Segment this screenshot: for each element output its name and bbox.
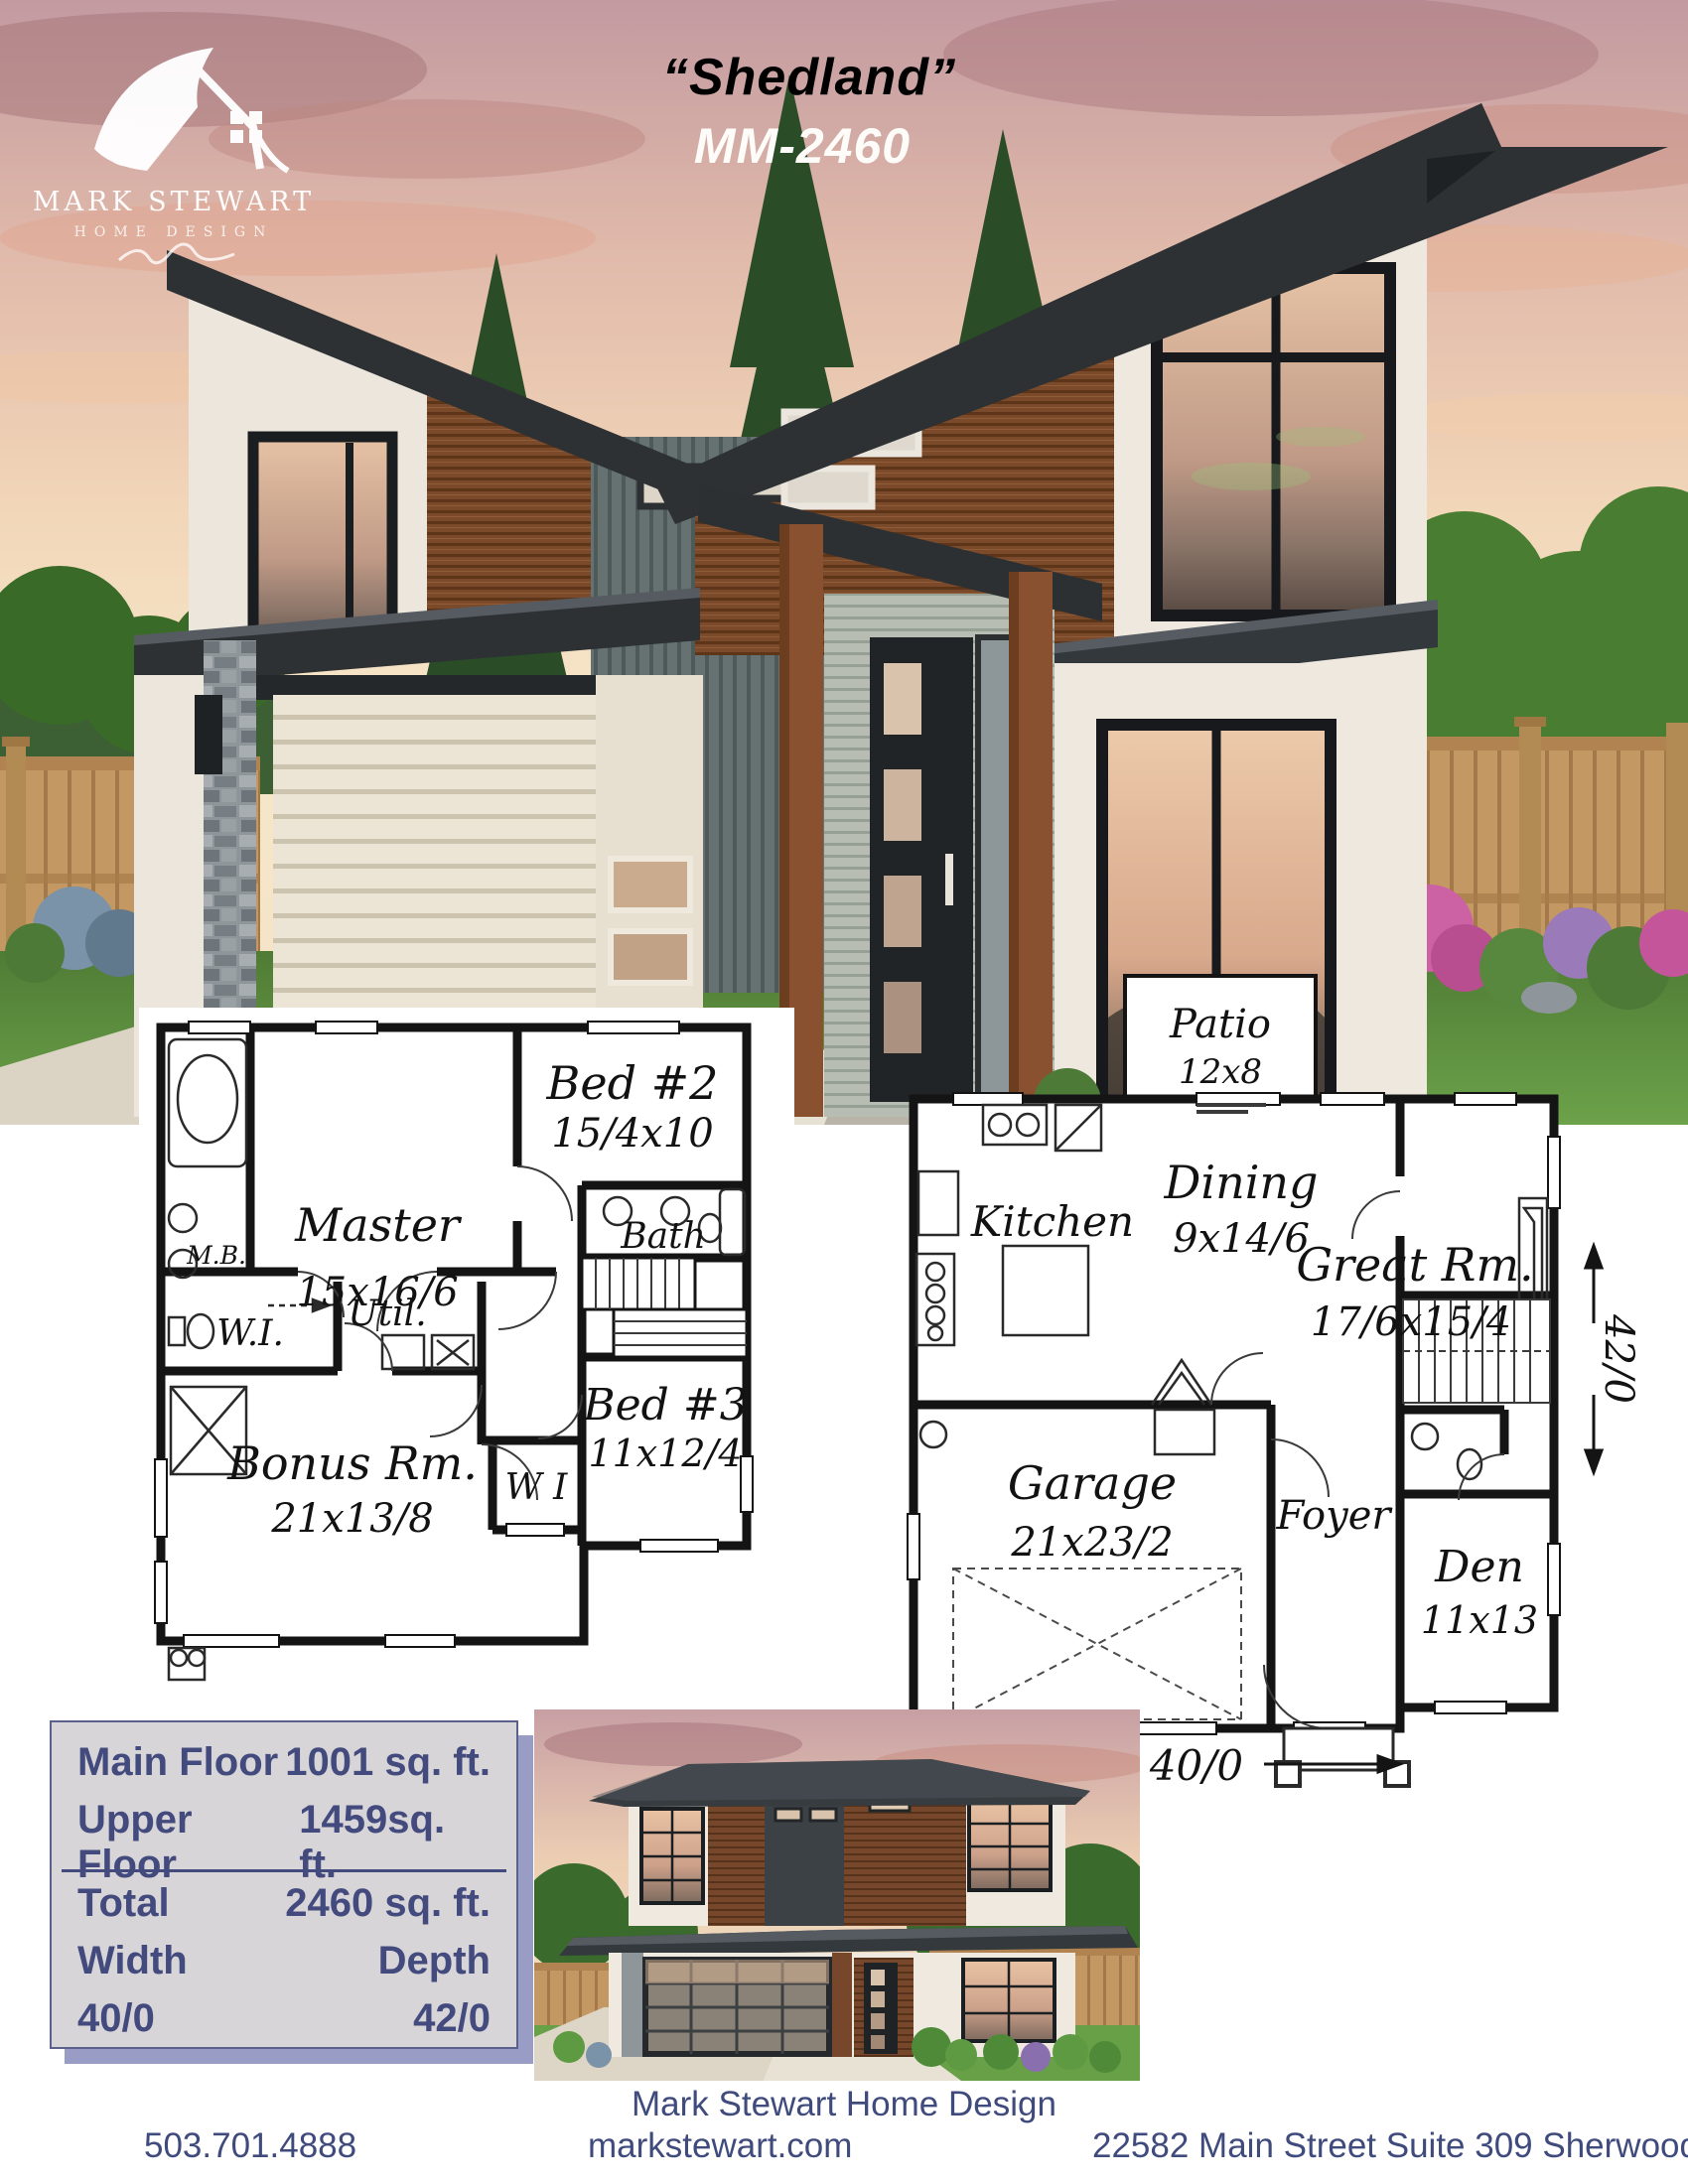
- room-label-bonus: Bonus Rm.: [226, 1436, 478, 1490]
- room-label-wi: W.I.: [216, 1313, 284, 1354]
- room-label-bed3: Bed #3: [582, 1380, 747, 1431]
- flyer-page: MARK STEWART HOME DESIGN “Shedland” MM-2…: [0, 0, 1688, 2184]
- porch: [1276, 1728, 1409, 1786]
- alternate-house-rendering: [534, 1709, 1140, 2081]
- room-label-mb: M.B.: [186, 1241, 246, 1270]
- room-dim-great: 17/6x15/4: [1311, 1299, 1511, 1345]
- stats-divider: [62, 1869, 506, 1872]
- room-label-master: Master: [294, 1198, 463, 1252]
- width-dim-label: 40/0: [1149, 1741, 1243, 1790]
- room-label-den: Den: [1434, 1542, 1524, 1592]
- stats-value: 1001 sq. ft.: [285, 1740, 491, 1785]
- alt-house: [553, 1759, 1138, 2073]
- room-label-bath: Bath: [620, 1216, 706, 1257]
- stats-label: 40/0: [77, 1996, 155, 2041]
- room-label-patio: Patio: [1169, 1002, 1271, 1047]
- stats-table: Main Floor 1001 sq. ft. Upper Floor 1459…: [50, 1720, 518, 2049]
- footer-phone: 503.701.4888: [144, 2126, 356, 2166]
- alt-garage-door: [645, 1960, 829, 2054]
- room-label-util: Util.: [348, 1294, 426, 1334]
- room-dim-garage: 21x23/2: [1010, 1520, 1173, 1566]
- stats-value: 2460 sq. ft.: [285, 1881, 491, 1926]
- room-dim-patio: 12x8: [1179, 1052, 1262, 1092]
- stats-value: 1459sq. ft.: [299, 1798, 491, 1887]
- stats-label: Total: [77, 1881, 170, 1926]
- main-floor-plan: 40/0 42/0 Patio 12x8 Kitchen Dining 9x14…: [899, 938, 1653, 1792]
- stats-value: 42/0: [413, 1996, 491, 2041]
- stats-label: Upper Floor: [77, 1798, 299, 1887]
- footer-website: markstewart.com: [588, 2126, 852, 2166]
- room-label-kitchen: Kitchen: [970, 1197, 1134, 1246]
- stats-label: Width: [77, 1939, 188, 1983]
- room-dim-bonus: 21x13/8: [270, 1496, 433, 1542]
- stats-value: Depth: [378, 1939, 491, 1983]
- room-label-bed2: Bed #2: [546, 1056, 719, 1110]
- footer-company: Mark Stewart Home Design: [0, 2085, 1688, 2124]
- room-label-dining: Dining: [1163, 1156, 1318, 1209]
- plan-name-title: “Shedland”: [662, 48, 956, 107]
- room-dim-bed2: 15/4x10: [551, 1111, 713, 1157]
- alt-front-door: [864, 1963, 898, 2054]
- logo-subtitle: HOME DESIGN: [74, 224, 274, 240]
- upper-floor-plan: Master 15x16/6 M.B. Bed #2 15/4x10 Bath …: [139, 1008, 794, 1693]
- plan-code-title: MM-2460: [694, 117, 911, 175]
- room-label-garage: Garage: [1008, 1456, 1177, 1510]
- logo-name: MARK STEWART: [33, 187, 315, 217]
- room-label-foyer: Foyer: [1275, 1493, 1393, 1539]
- room-dim-bed3: 11x12/4: [588, 1432, 742, 1475]
- room-dim-den: 11x13: [1421, 1598, 1538, 1642]
- stats-label: Main Floor: [77, 1740, 278, 1785]
- room-label-wi2: W I: [505, 1467, 568, 1508]
- room-dim-dining: 9x14/6: [1173, 1216, 1310, 1262]
- footer-address: 22582 Main Street Suite 309 Sherwood, OR…: [1092, 2126, 1688, 2166]
- depth-dim-label: 42/0: [1596, 1313, 1641, 1404]
- wall-sconce: [195, 695, 222, 774]
- room-label-great: Great Rm.: [1296, 1238, 1533, 1292]
